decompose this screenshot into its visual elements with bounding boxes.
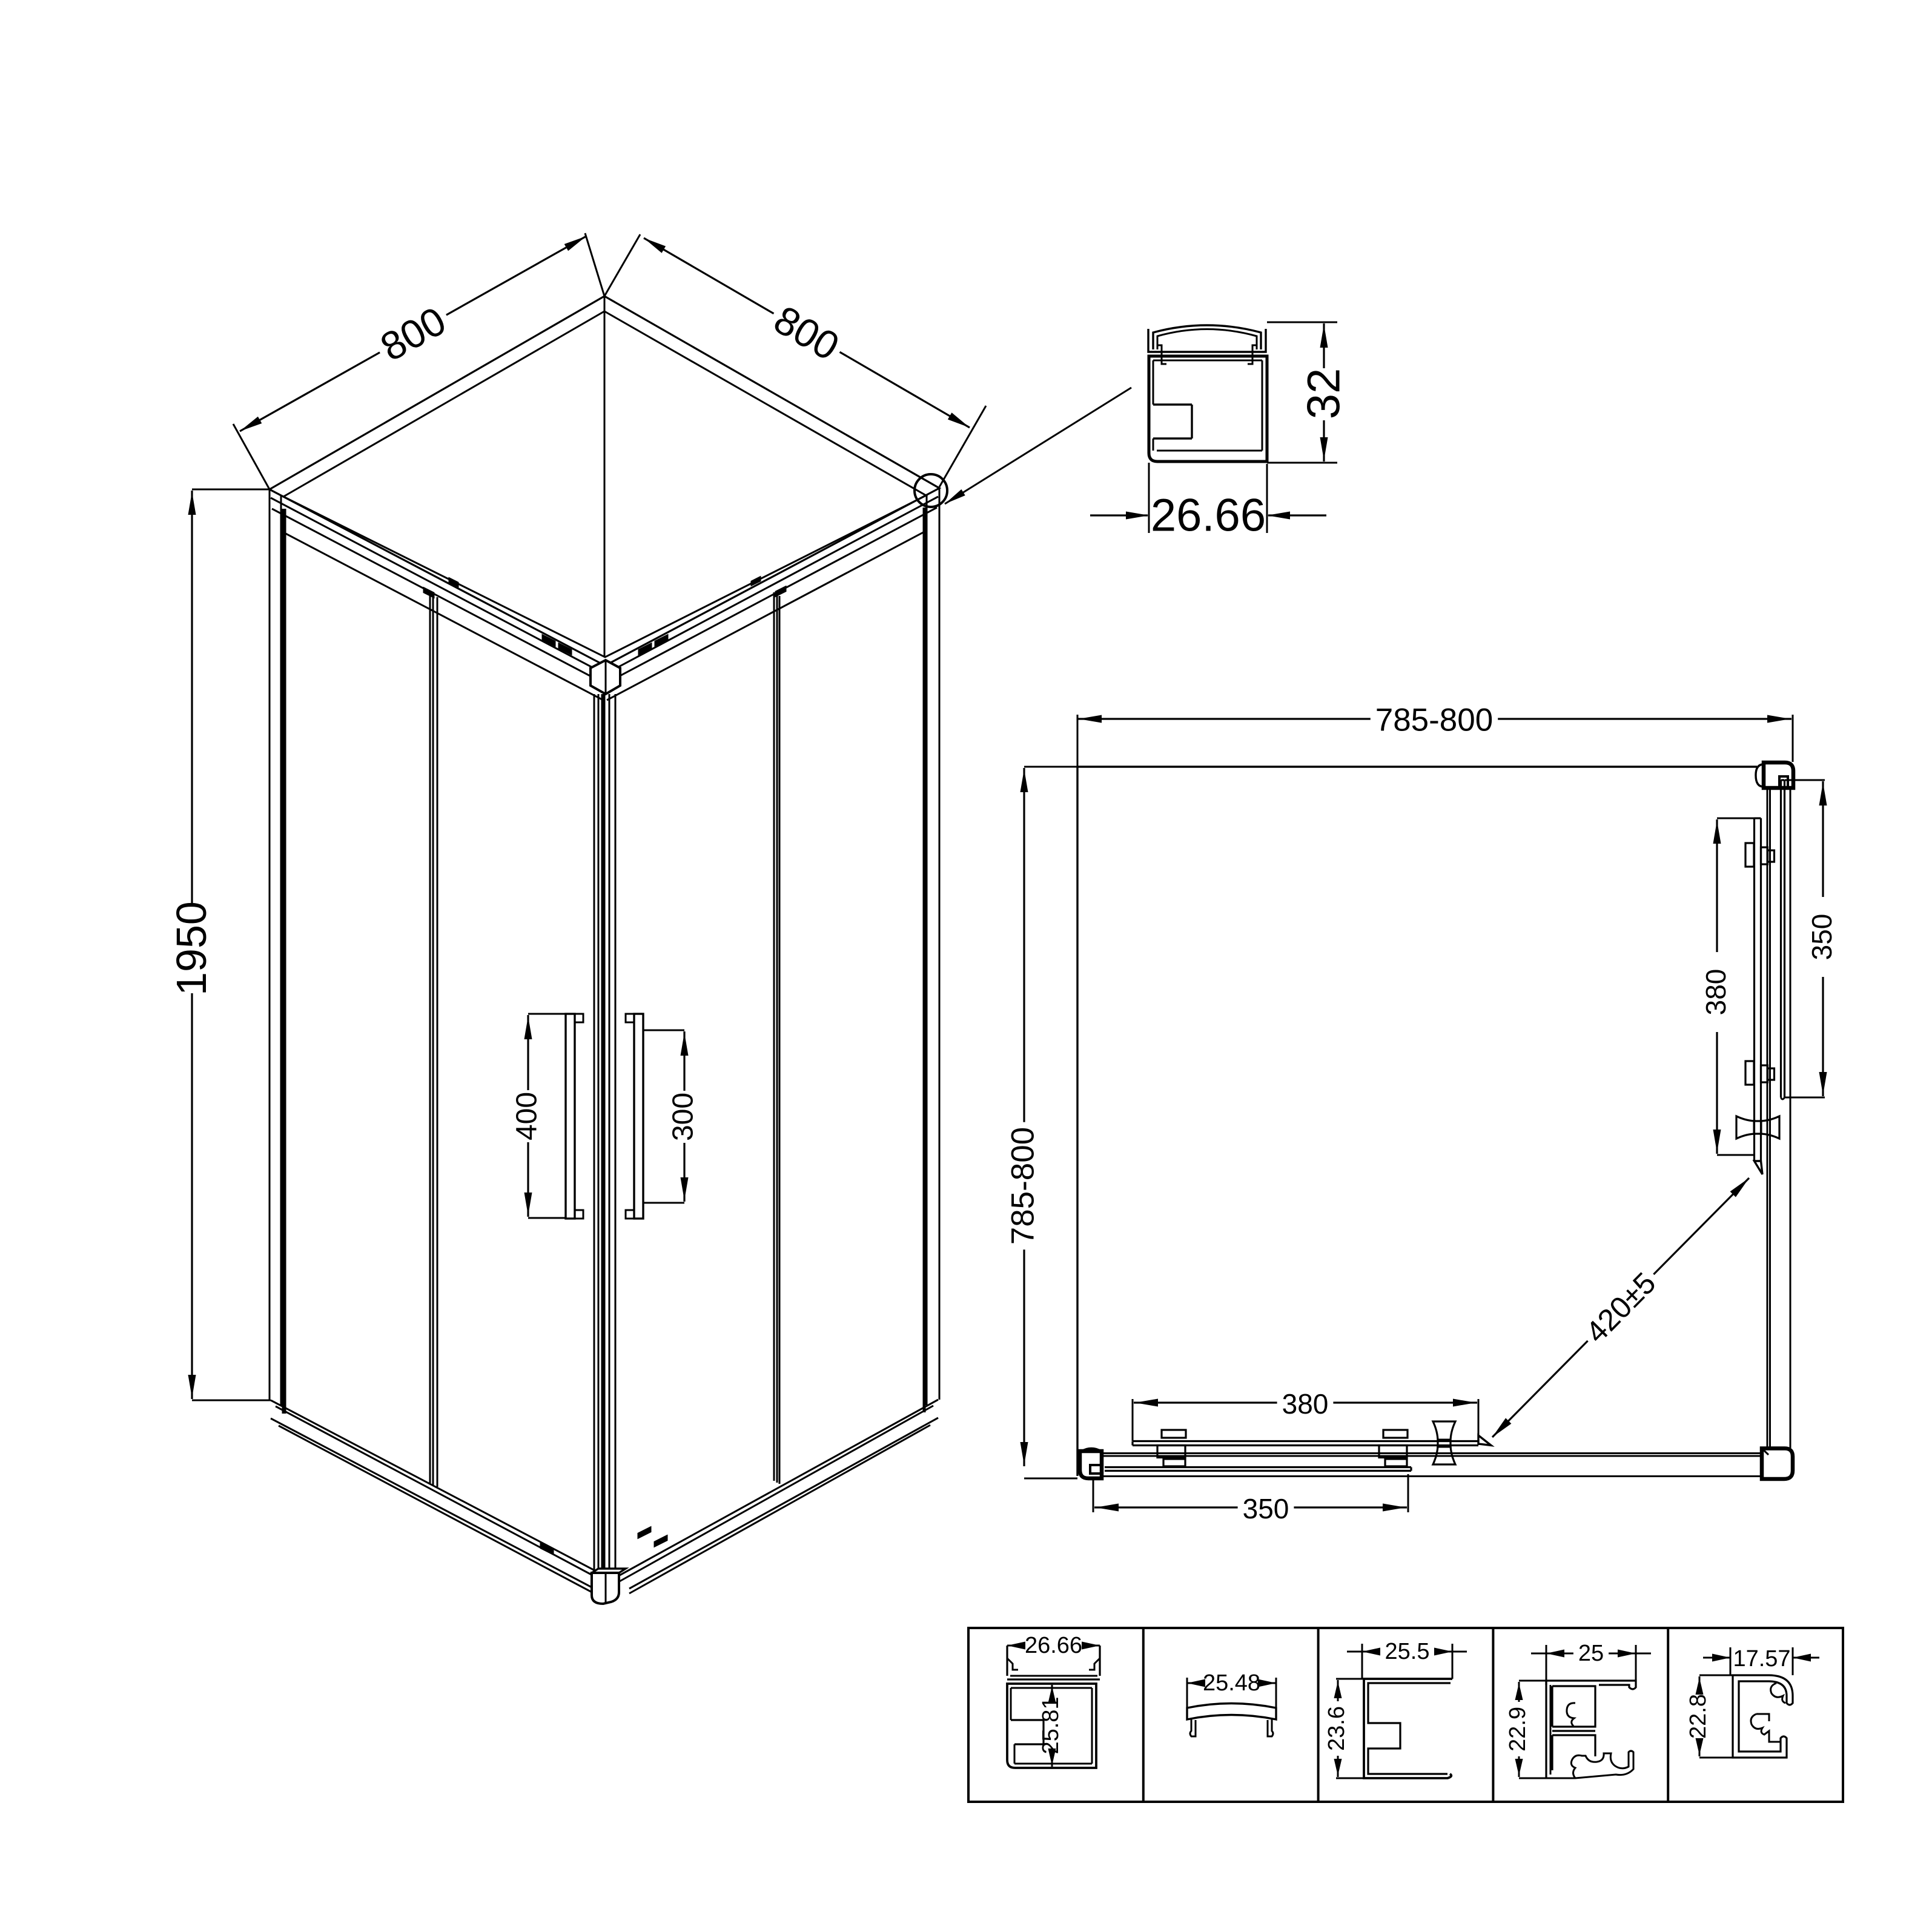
svg-text:1950: 1950: [168, 901, 215, 996]
svg-text:400: 400: [511, 1092, 543, 1140]
svg-text:26.66: 26.66: [1151, 490, 1266, 541]
svg-text:26.66: 26.66: [1025, 1633, 1082, 1658]
svg-text:785-800: 785-800: [1375, 703, 1494, 738]
svg-text:17.57: 17.57: [1733, 1646, 1790, 1672]
svg-text:32: 32: [1298, 368, 1350, 420]
svg-text:22.9: 22.9: [1505, 1707, 1530, 1752]
svg-text:785-800: 785-800: [1005, 1127, 1041, 1245]
svg-text:350: 350: [1243, 1493, 1289, 1524]
svg-text:25.48: 25.48: [1203, 1670, 1260, 1696]
svg-text:25: 25: [1578, 1641, 1604, 1666]
svg-text:380: 380: [1282, 1388, 1329, 1420]
svg-text:25.5: 25.5: [1385, 1639, 1430, 1664]
svg-text:380: 380: [1700, 969, 1732, 1016]
svg-text:25.81: 25.81: [1038, 1696, 1064, 1754]
svg-text:350: 350: [1806, 914, 1838, 961]
svg-text:300: 300: [667, 1093, 700, 1141]
svg-text:23.6: 23.6: [1324, 1706, 1349, 1751]
svg-text:22.8: 22.8: [1686, 1694, 1711, 1739]
